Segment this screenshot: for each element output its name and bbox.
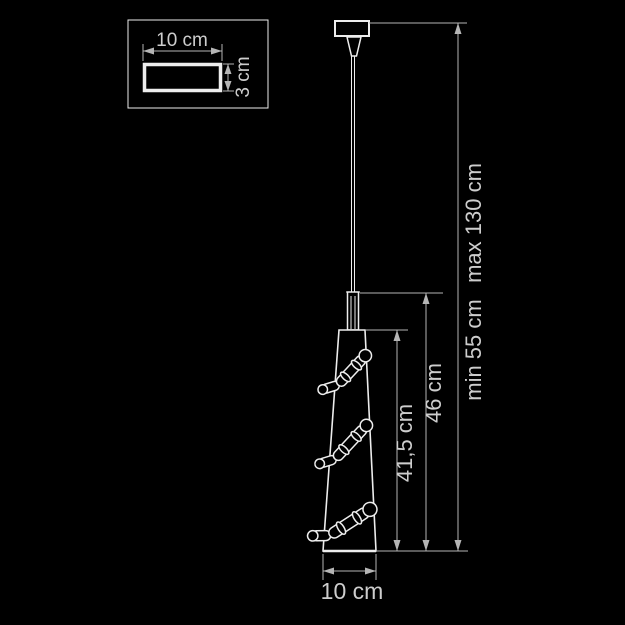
arrow-left-icon: [323, 568, 334, 575]
arrow-down-icon: [455, 540, 462, 551]
arrow-up-icon: [455, 23, 462, 34]
arrow-up-icon: [225, 64, 232, 74]
arrow-left-icon: [143, 48, 154, 55]
arrow-down-icon: [394, 540, 401, 551]
shade-diameter-label: 10 cm: [321, 578, 384, 604]
arrow-right-icon: [365, 568, 376, 575]
pendant-lamp: [303, 21, 380, 553]
cross-section-inset: 10 cm 3 cm: [128, 20, 268, 108]
technical-drawing-canvas: 10 cm 3 cm: [0, 0, 625, 625]
arrow-down-icon: [423, 540, 430, 551]
ceiling-canopy: [335, 21, 369, 36]
arrow-up-icon: [394, 330, 401, 341]
suspension-min-label: min 55 cm: [461, 299, 486, 400]
shade-height-label: 41,5 cm: [392, 404, 417, 482]
inset-width-label: 10 cm: [156, 30, 208, 51]
suspension-max-label: max 130 cm: [461, 163, 486, 283]
cord-grip: [347, 37, 361, 56]
inset-depth-label: 3 cm: [233, 56, 254, 97]
arrow-down-icon: [225, 81, 232, 91]
socket-tube: [348, 292, 359, 330]
arrow-up-icon: [423, 293, 430, 304]
body-height-label: 46 cm: [421, 363, 446, 423]
inset-profile-rectangle: [145, 65, 221, 91]
arrow-right-icon: [211, 48, 222, 55]
